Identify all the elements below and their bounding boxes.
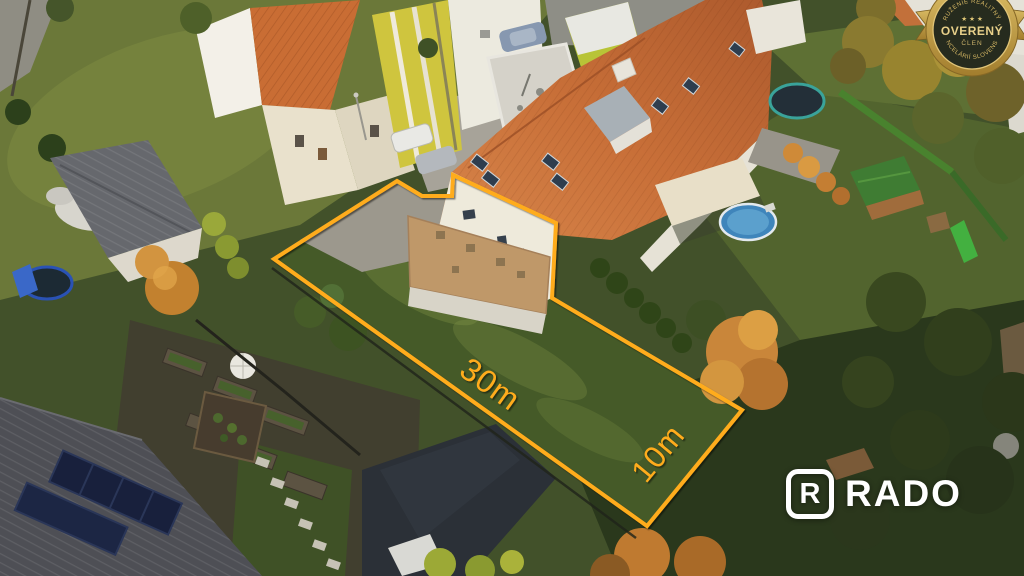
measurement-label-10m: 10m bbox=[624, 418, 691, 489]
badge-title: OVERENÝ bbox=[941, 23, 1003, 38]
badge-subtitle: ČLEN bbox=[961, 38, 982, 47]
rado-logo-watermark: R RADO bbox=[786, 466, 962, 522]
measurement-label-30m: 30m bbox=[453, 350, 527, 417]
badge-stars: ★ ★ ★ bbox=[961, 15, 983, 23]
rado-logo-text: RADO bbox=[845, 473, 962, 515]
aerial-property-photo: 30m 10m ZDRUŽENIE REALITNÝCH KANCELÁRIÍ … bbox=[0, 0, 1024, 576]
rado-icon-letter: R bbox=[800, 480, 821, 509]
plot-boundary-line bbox=[274, 175, 742, 526]
rado-logo-icon: R bbox=[786, 469, 834, 519]
verified-member-badge: ZDRUŽENIE REALITNÝCH KANCELÁRIÍ SLOVENSK… bbox=[902, 0, 1024, 92]
